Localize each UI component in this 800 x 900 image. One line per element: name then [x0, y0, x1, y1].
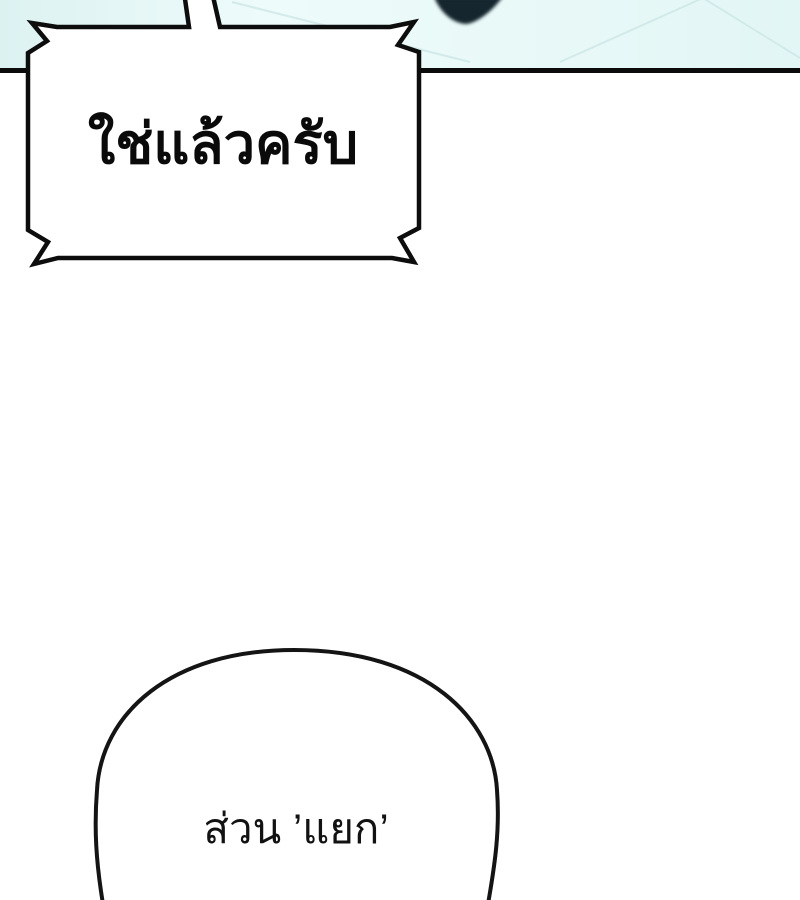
rounded-bubble-shape [96, 650, 498, 900]
aside-bubble-text: ส่วน ’แยก’ [96, 796, 496, 862]
comic-page: ใช่แล้วครับ ส่วน ’แยก’ [0, 0, 800, 900]
shout-bubble-text: ใช่แล้วครับ [28, 30, 418, 256]
